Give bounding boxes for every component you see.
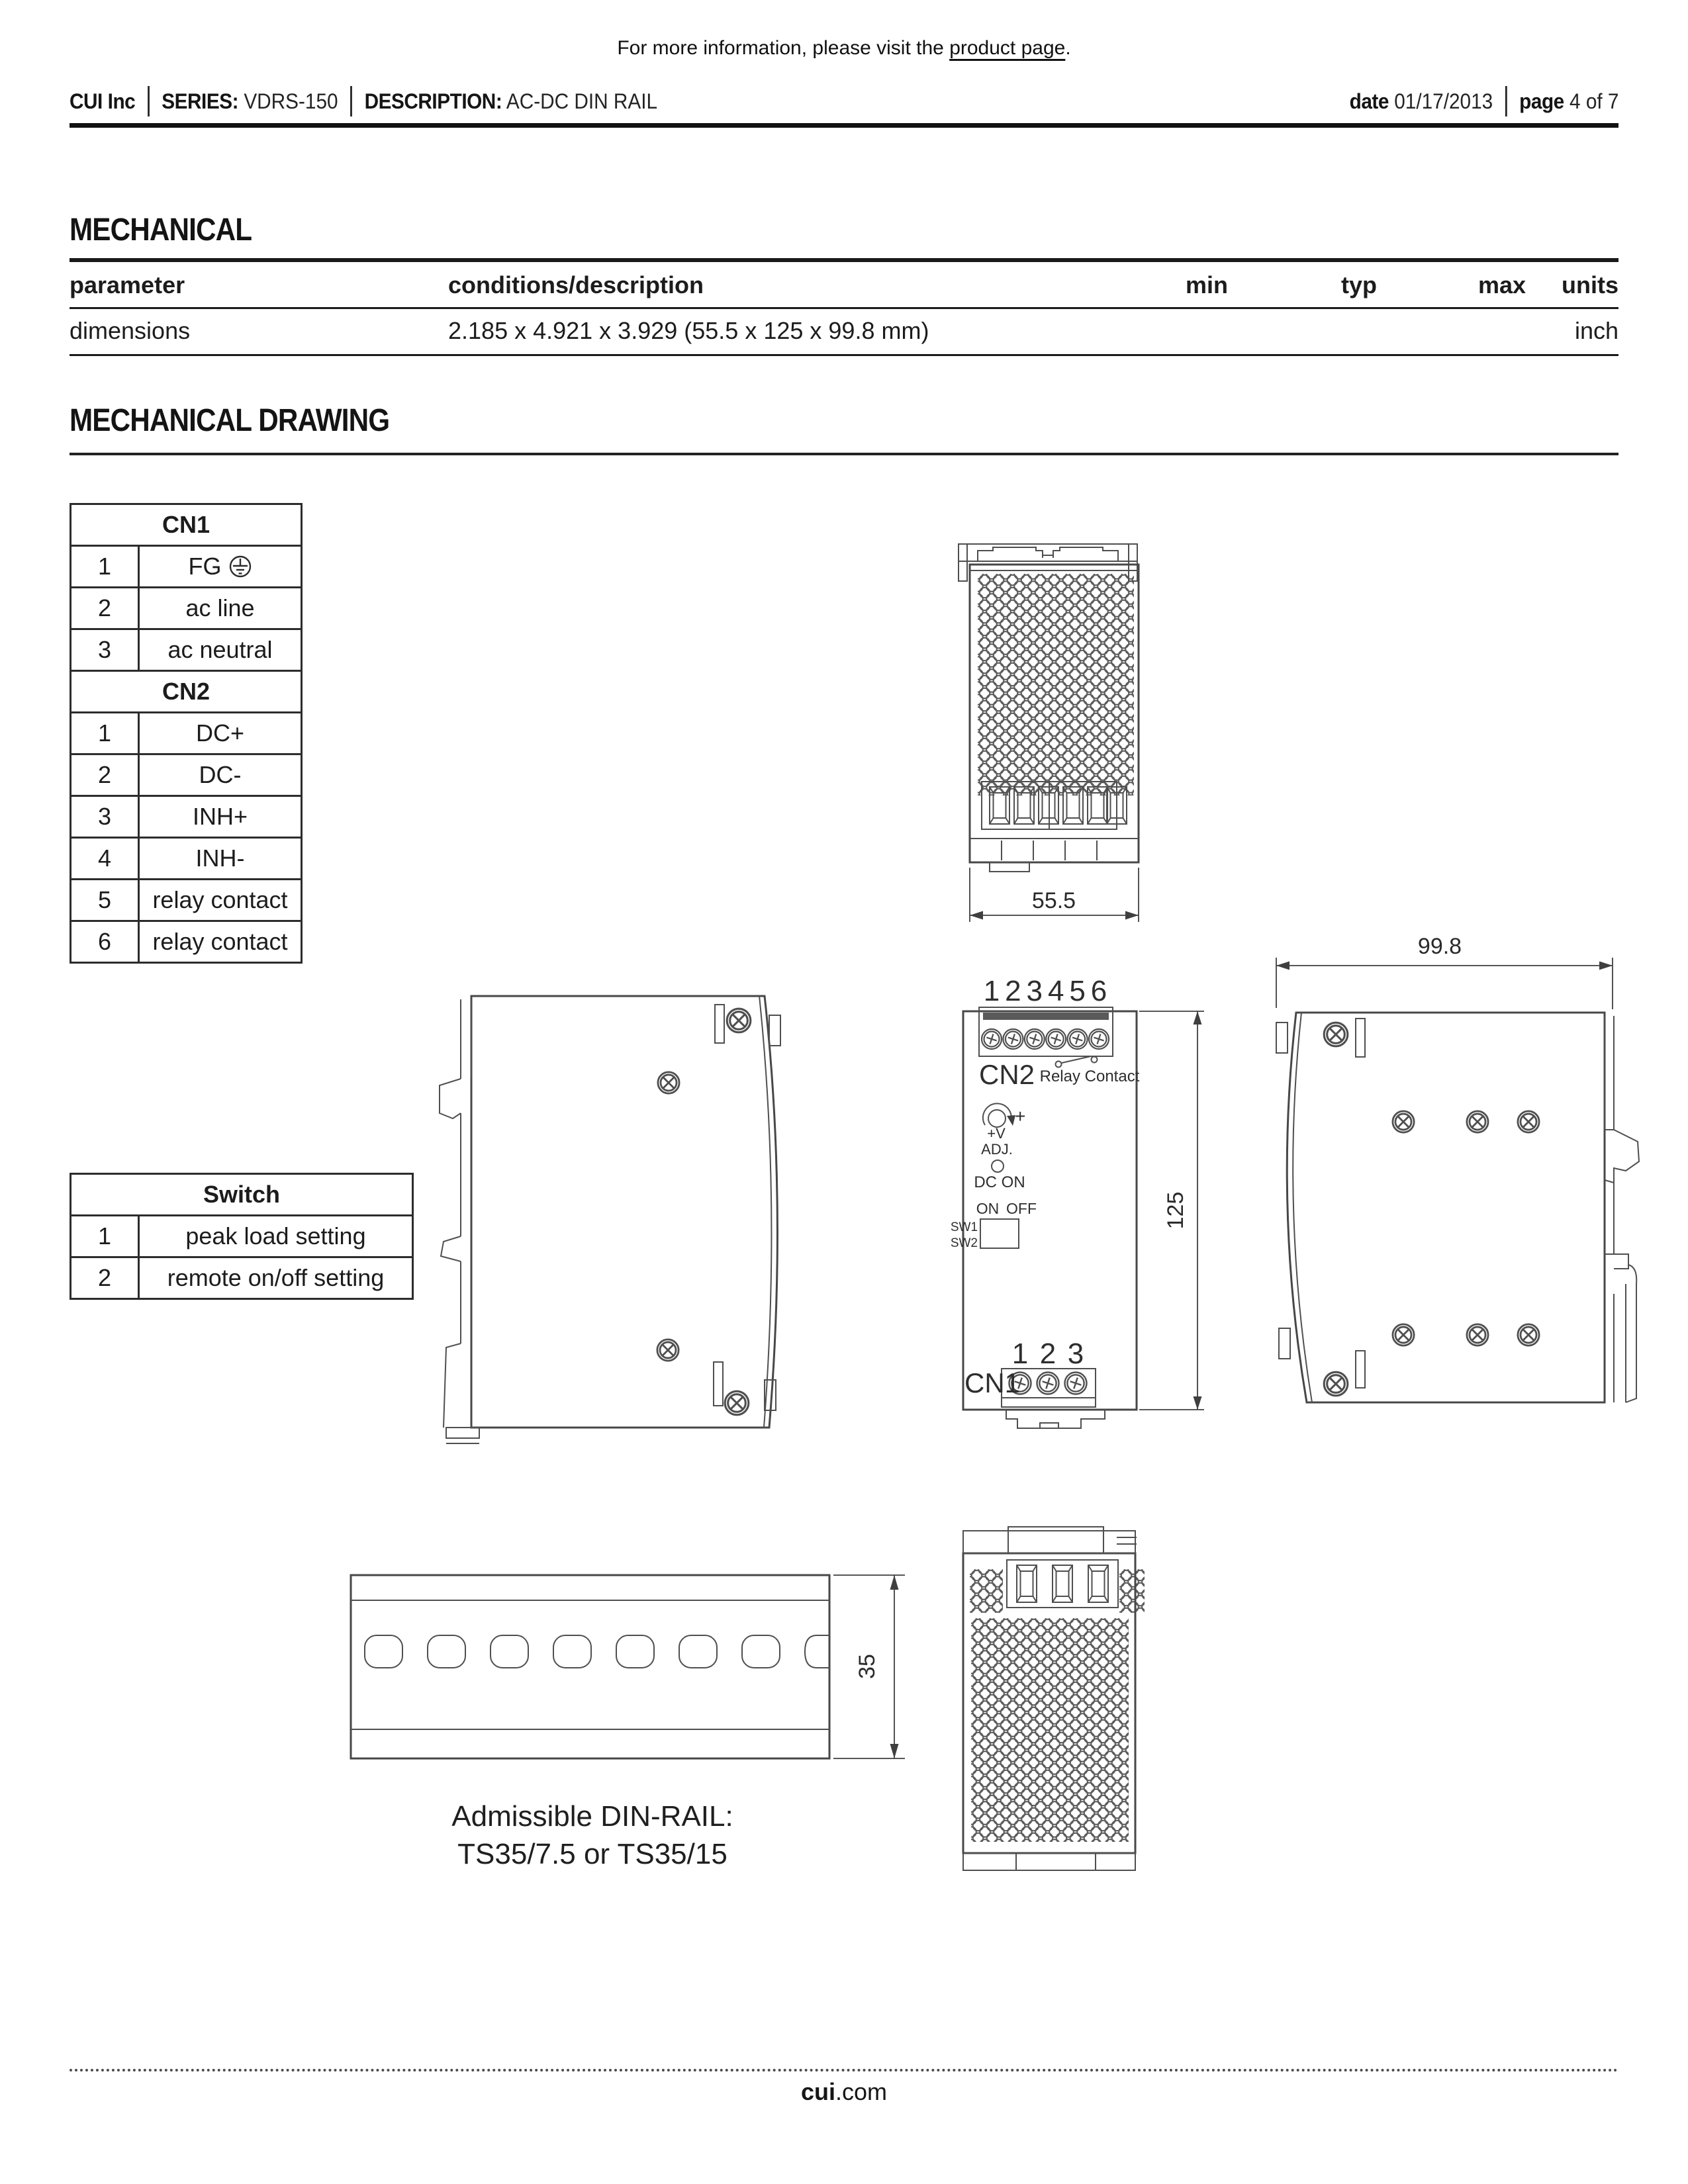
earth-ground-icon (228, 555, 252, 578)
side-view-right-drawing: 99.8 (1244, 923, 1655, 1426)
table-row: 3INH+ (71, 796, 302, 838)
lower-housing (970, 839, 1139, 872)
voltage-adjust-pot: + (983, 1103, 1025, 1127)
pin-number: 4 (1048, 975, 1064, 1007)
dc-on-label: DC ON (974, 1173, 1025, 1191)
rail-slots (365, 1635, 829, 1668)
plus-sign: + (1015, 1106, 1025, 1126)
mechanical-table: parameter conditions/description min typ… (70, 258, 1618, 356)
din-bracket-top (959, 544, 1137, 581)
pin-label: FG (139, 546, 302, 588)
sw1-label: SW1 (951, 1220, 978, 1234)
date-value: 01/17/2013 (1394, 89, 1493, 113)
section-title-mechanical-drawing: MECHANICAL DRAWING (70, 402, 389, 439)
dim-width-value: 55.5 (1032, 888, 1076, 913)
cn2-terminal (979, 1007, 1113, 1056)
footer-site-rest: .com (835, 2078, 887, 2105)
top-note-suffix: . (1065, 37, 1070, 59)
col-conditions: conditions/description (448, 260, 1123, 308)
pin-number: 1 (1012, 1338, 1028, 1370)
col-parameter: parameter (70, 260, 448, 308)
pin-label: ac line (139, 588, 302, 629)
cell-parameter: dimensions (70, 308, 448, 355)
side-right-body (1276, 1013, 1605, 1402)
description-value: AC-DC DIN RAIL (506, 89, 657, 113)
top-view-drawing: 55.5 (943, 526, 1155, 936)
table-row: dimensions 2.185 x 4.921 x 3.929 (55.5 x… (70, 308, 1618, 355)
pin-number: 3 (71, 629, 139, 671)
page-number: page 4 of 7 (1519, 89, 1618, 114)
cn2-label: CN2 (979, 1059, 1035, 1090)
pin-label: peak load setting (139, 1216, 413, 1257)
pin-number: 1 (71, 1216, 139, 1257)
dim-depth-value: 99.8 (1418, 934, 1462, 959)
col-min: min (1123, 260, 1228, 308)
table-row: 2remote on/off setting (71, 1257, 413, 1299)
table-row: 2ac line (71, 588, 302, 629)
pin-number: 2 (71, 588, 139, 629)
terminal-block-6pos (982, 782, 1127, 829)
din-rail-drawing: 35 (341, 1562, 923, 1774)
relay-contact-symbol (1056, 1056, 1098, 1068)
cell-conditions: 2.185 x 4.921 x 3.929 (55.5 x 125 x 99.8… (448, 308, 1123, 355)
on-label: ON (976, 1200, 1000, 1217)
footer-site-link[interactable]: cui.com (0, 2078, 1688, 2106)
page-label: page (1519, 89, 1564, 113)
cell-typ (1228, 308, 1377, 355)
dimension-height: 125 (1139, 1011, 1204, 1410)
series-value: VDRS-150 (244, 89, 338, 113)
din-mount-profile (1605, 1016, 1639, 1402)
cell-min (1123, 308, 1228, 355)
dimension-width: 55.5 (970, 868, 1139, 922)
table-row: 1DC+ (71, 713, 302, 754)
adj-label-2: ADJ. (981, 1141, 1013, 1158)
pin-numbers-top: 1 2 3 4 5 6 (984, 975, 1107, 1007)
din-rail-profile (351, 1575, 829, 1758)
pin-number: 6 (71, 921, 139, 963)
col-max: max (1377, 260, 1526, 308)
header-rule (70, 123, 1618, 128)
table-row: 5relay contact (71, 880, 302, 921)
din-clip-notch (1040, 1423, 1058, 1428)
pin-number: 2 (1005, 975, 1021, 1007)
pin-number: 5 (1069, 975, 1085, 1007)
switch-table: Switch 1peak load setting 2remote on/off… (70, 1173, 414, 1300)
table-header-row: Switch (71, 1174, 413, 1216)
cell-max (1377, 308, 1526, 355)
cell-units: inch (1526, 308, 1618, 355)
dimension-depth: 99.8 (1276, 934, 1613, 1009)
header-bar: CUI Inc SERIES: VDRS-150 DESCRIPTION: AC… (70, 83, 1618, 119)
col-units: units (1526, 260, 1618, 308)
pin-number: 1 (984, 975, 1000, 1007)
din-rail-caption: Admissible DIN-RAIL: TS35/7.5 or TS35/15 (341, 1797, 844, 1873)
table-row: 1 FG (71, 546, 302, 588)
screws (1324, 1019, 1539, 1396)
pin-label: INH+ (139, 796, 302, 838)
din-clip-bottom (1006, 1410, 1105, 1428)
top-note: For more information, please visit the p… (0, 37, 1688, 60)
bottom-view-drawing (950, 1519, 1162, 1876)
top-view-body (970, 565, 1139, 872)
col-typ: typ (1228, 260, 1377, 308)
dc-on-led (992, 1160, 1004, 1172)
pin-numbers-bottom: 1 2 3 (1012, 1338, 1084, 1370)
pin-number: 3 (1068, 1338, 1084, 1370)
date-label: date (1349, 89, 1388, 113)
sw2-label: SW2 (951, 1236, 978, 1250)
din-rail-caption-line1: Admissible DIN-RAIL: (341, 1797, 844, 1835)
footer-site-bold: cui (801, 2078, 835, 2105)
cn2-table: CN2 1DC+ 2DC- 3INH+ 4INH- 5relay contact… (70, 670, 303, 964)
dim-rail-height-value: 35 (855, 1654, 880, 1679)
pin-number: 1 (71, 713, 139, 754)
front-view-drawing: 1 2 3 4 5 6 CN2 Relay Contact + +V ADJ. … (950, 972, 1215, 1435)
series-label: SERIES: (162, 89, 238, 113)
pin-number: 6 (1091, 975, 1107, 1007)
header-divider (350, 86, 352, 116)
bottom-view-body (963, 1527, 1137, 1870)
off-label: OFF (1006, 1200, 1037, 1217)
pin-number: 3 (1027, 975, 1043, 1007)
switch-title: Switch (71, 1174, 413, 1216)
dimension-rail-height: 35 (833, 1575, 905, 1758)
description: DESCRIPTION: AC-DC DIN RAIL (365, 89, 658, 114)
table-row: 1peak load setting (71, 1216, 413, 1257)
pin-number: 3 (71, 796, 139, 838)
cn1-title: CN1 (71, 504, 302, 546)
pin-number: 2 (71, 754, 139, 796)
table-header-row: parameter conditions/description min typ… (70, 260, 1618, 308)
pin-label: INH- (139, 838, 302, 880)
dim-height-value: 125 (1163, 1192, 1188, 1230)
section-rule (70, 453, 1618, 455)
pin-label: relay contact (139, 880, 302, 921)
side-view-left-drawing (430, 946, 801, 1449)
top-note-text: For more information, please visit the (617, 37, 949, 59)
pin-number: 5 (71, 880, 139, 921)
product-page-link[interactable]: product page (949, 37, 1065, 59)
cn2-title: CN2 (71, 671, 302, 713)
bottom-cap (963, 1853, 1135, 1870)
table-header-row: CN1 (71, 504, 302, 546)
pin-label: remote on/off setting (139, 1257, 413, 1299)
pin-label: DC+ (139, 713, 302, 754)
pin-number: 2 (71, 1257, 139, 1299)
footer-rule (70, 2069, 1618, 2071)
datasheet-page: For more information, please visit the p… (0, 0, 1688, 2184)
pin-number: 4 (71, 838, 139, 880)
din-rail-caption-line2: TS35/7.5 or TS35/15 (341, 1835, 844, 1873)
pin-number: 2 (1040, 1338, 1056, 1370)
company-name: CUI Inc (70, 89, 135, 114)
cn1-label: CN1 (964, 1367, 1020, 1398)
series: SERIES: VDRS-150 (162, 89, 338, 114)
pin-label: ac neutral (139, 629, 302, 671)
screws (657, 1005, 751, 1415)
section-title-mechanical: MECHANICAL (70, 212, 252, 248)
pin-label: DC- (139, 754, 302, 796)
description-label: DESCRIPTION: (365, 89, 502, 113)
pin-label-text: FG (189, 553, 222, 580)
date: date 01/17/2013 (1349, 89, 1493, 114)
table-row: 4INH- (71, 838, 302, 880)
table-row: 3ac neutral (71, 629, 302, 671)
cn1-table: CN1 1 FG 2ac line 3ac neutral (70, 503, 303, 672)
table-header-row: CN2 (71, 671, 302, 713)
pin-label: relay contact (139, 921, 302, 963)
header-divider (148, 86, 150, 116)
terminal-block-3pos (1007, 1560, 1118, 1608)
din-clip-profile (440, 999, 479, 1443)
relay-contact-label: Relay Contact (1040, 1068, 1140, 1085)
table-row: 6relay contact (71, 921, 302, 963)
adj-label-1: +V (987, 1125, 1006, 1142)
pin-number: 1 (71, 546, 139, 588)
page-value: 4 of 7 (1570, 89, 1618, 113)
side-left-body (471, 996, 780, 1428)
header-right: date 01/17/2013 page 4 of 7 (1349, 86, 1618, 116)
table-row: 2DC- (71, 754, 302, 796)
header-left: CUI Inc SERIES: VDRS-150 DESCRIPTION: AC… (70, 86, 657, 116)
header-divider (1505, 86, 1507, 116)
